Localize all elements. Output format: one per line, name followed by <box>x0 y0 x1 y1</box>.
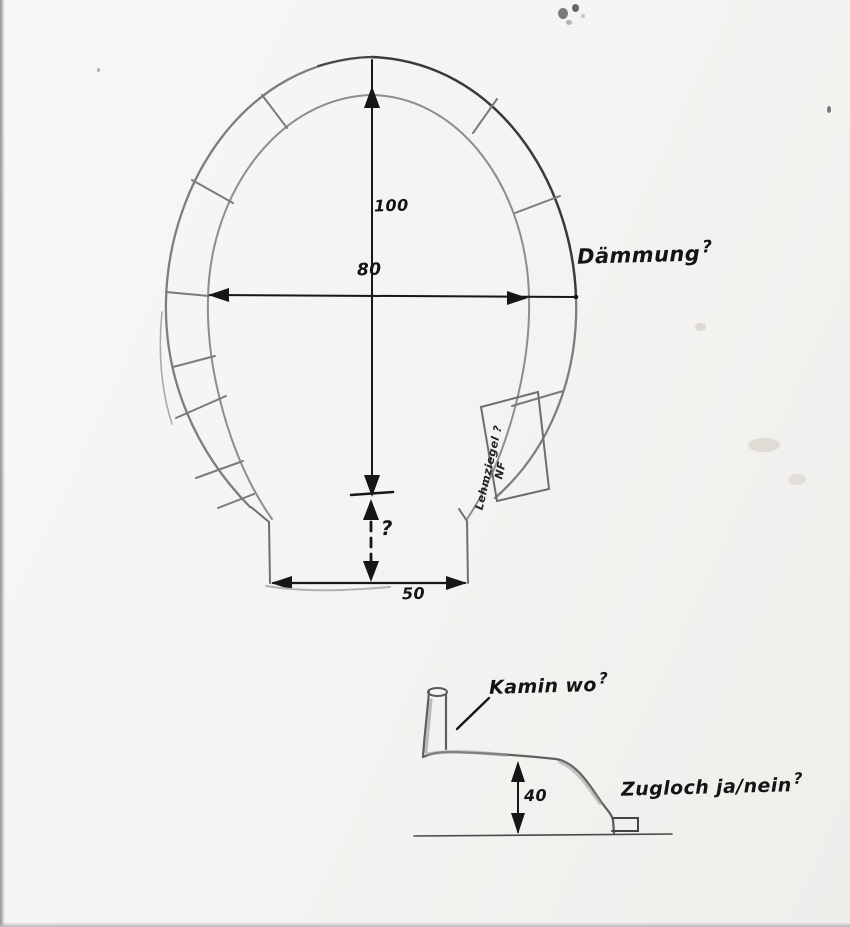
chimney-top-opening <box>428 688 447 696</box>
dim-50-arrow-right <box>446 576 467 590</box>
dim-100-arrow-up <box>364 86 380 108</box>
dim-80-arrow-left <box>208 288 229 302</box>
dim-40-arrow-down <box>511 813 525 834</box>
insulation-note: Dämmung? <box>577 237 713 269</box>
draft-hole-box <box>612 818 638 831</box>
draft-hole-note-qmark: ? <box>793 770 803 788</box>
dome-inner-arc <box>208 95 529 519</box>
dim-40-arrow-up <box>511 761 525 782</box>
dim-80-arrow-right <box>507 291 528 305</box>
dim-label-100: 100 <box>374 196 409 216</box>
oven-side-view <box>414 688 672 836</box>
draft-hole-note: Zugloch ja/nein? <box>621 770 804 801</box>
dim-label-unknown: ? <box>381 516 394 540</box>
dim-80-end-dot <box>574 295 579 300</box>
chimney-note-text: Kamin wo <box>489 674 597 699</box>
brick-joints-right <box>473 99 563 406</box>
opening-left-wall <box>251 507 270 583</box>
dim-unknown-arrow-up <box>363 499 379 520</box>
dome-outer-arc-overdraw <box>372 57 576 297</box>
chimney-note-qmark: ? <box>598 669 608 687</box>
chimney-note: Kamin wo? <box>489 669 609 698</box>
oven-profile-shading-2 <box>560 762 600 803</box>
dim-label-80: 80 <box>357 260 382 281</box>
opening-right-wall <box>459 509 468 583</box>
side-view-dimensions <box>457 698 525 834</box>
dim-unknown-arrow-down <box>363 561 379 582</box>
brick-joints-left <box>166 95 287 508</box>
insulation-note-text: Dämmung <box>577 242 701 269</box>
dome-front-view <box>160 57 576 583</box>
oven-profile-shading-1 <box>428 752 506 755</box>
draft-hole-note-text: Zugloch ja/nein <box>621 774 792 800</box>
dim-label-50: 50 <box>402 584 426 604</box>
dim-label-40: 40 <box>524 786 548 806</box>
dim-100-tick <box>351 492 393 495</box>
insulation-note-qmark: ? <box>702 237 713 257</box>
ground-line <box>414 834 672 836</box>
chimney-leader-line <box>457 698 489 729</box>
